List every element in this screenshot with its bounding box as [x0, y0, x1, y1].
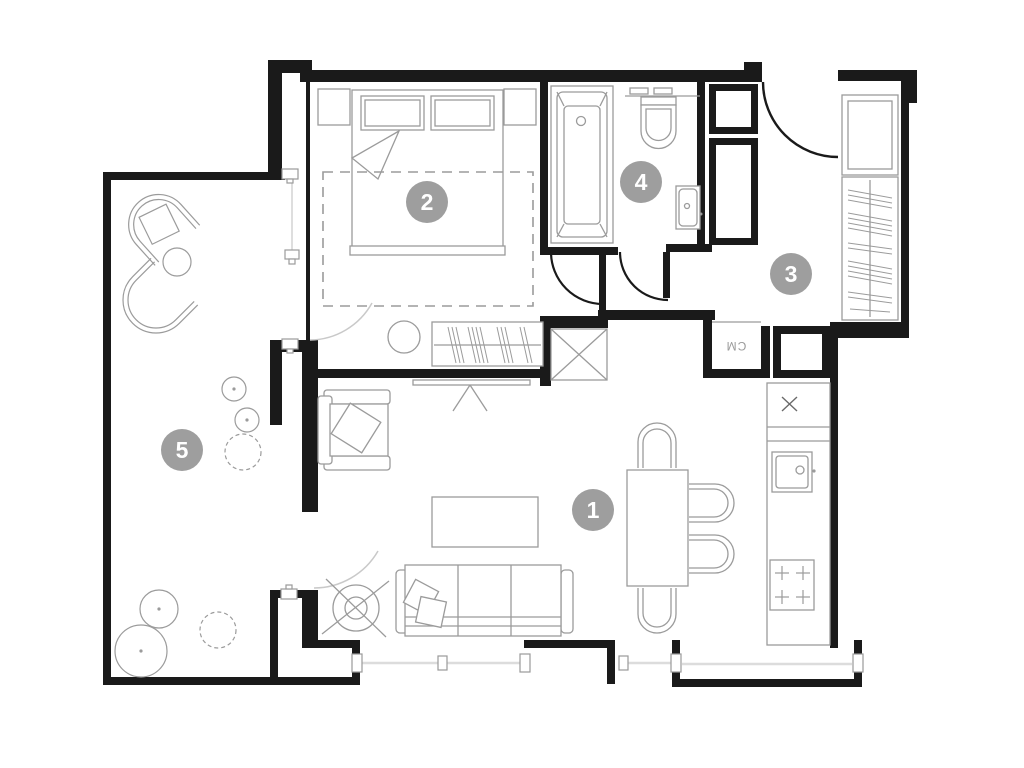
pouf	[388, 321, 420, 353]
nightstand-right	[504, 89, 536, 125]
pilaster-entry	[744, 62, 762, 82]
window-mullion	[619, 656, 628, 670]
room-badge-living-room: 1	[572, 489, 614, 531]
lounge-cushion	[139, 204, 179, 244]
nightstand-left	[318, 89, 350, 125]
floor-plan-svg: CM 12345	[0, 0, 1024, 768]
wall-living-left-upper	[302, 340, 318, 512]
pilaster-top-left	[268, 60, 282, 176]
bathtub-drain	[577, 117, 586, 126]
bedroom-door-arc	[551, 252, 603, 304]
dining-chair-right-1	[689, 484, 734, 522]
bedroom-door-leaf	[599, 252, 606, 310]
junction-marker	[282, 169, 298, 183]
toilet	[641, 97, 676, 149]
niche-wall-right	[761, 326, 770, 378]
wall-bottom-block	[607, 648, 615, 684]
room-badge-hallway: 3	[770, 253, 812, 295]
sofa-cushion-2	[416, 597, 447, 628]
bathroom-door-leaf	[663, 252, 670, 298]
wall-xbox-top	[540, 316, 608, 328]
terrace-wall-left	[103, 172, 111, 685]
xbox-storage	[551, 329, 607, 380]
wall-bathroom-bottom-right	[666, 244, 712, 252]
wall-bottom-1	[302, 640, 360, 648]
window-mullion	[352, 654, 362, 672]
room-number-label: 4	[635, 169, 648, 195]
dining-chair-top	[638, 423, 676, 468]
living-room-furniture	[318, 380, 734, 637]
terrace-side-table	[163, 248, 191, 276]
tv	[413, 380, 530, 411]
room-number-label: 1	[587, 497, 600, 523]
terrace-plants	[115, 377, 261, 677]
room-number-label: 2	[421, 189, 434, 215]
bush-icon	[200, 612, 236, 648]
entry-door-arc	[763, 82, 838, 157]
window-mullion	[853, 654, 863, 672]
kitchen-sink	[772, 452, 816, 492]
bay-wall-bottom	[672, 679, 862, 687]
hallway-cabinet	[842, 95, 898, 175]
wall-kitchen-right	[830, 330, 838, 648]
wall-jog	[270, 590, 278, 685]
dining-set	[627, 423, 734, 633]
terrace-wall-bottom	[103, 677, 360, 685]
coffee-table	[432, 497, 538, 547]
stove	[770, 560, 814, 610]
bathroom-fixtures	[551, 86, 703, 243]
room-badge-terrace: 5	[161, 429, 203, 471]
room-number-label: 5	[176, 437, 189, 463]
window-mullion	[520, 654, 530, 672]
wall-corridor	[598, 310, 715, 320]
hallway-wardrobe	[842, 177, 898, 320]
window-mullion	[671, 654, 681, 672]
room-badge-bathroom: 4	[620, 161, 662, 203]
room-badge-bedroom: 2	[406, 181, 448, 223]
dining-table	[627, 470, 688, 586]
niche-wall-bottom	[703, 369, 770, 378]
dining-chair-bottom	[638, 588, 676, 633]
window-mullion	[438, 656, 447, 670]
wall-bedroom-bottom	[302, 369, 551, 378]
wall-top	[300, 70, 745, 82]
junction-marker	[281, 585, 297, 599]
washing-machine-label: CM	[726, 339, 747, 353]
dining-chair-right-2	[689, 535, 734, 573]
potted-plant	[322, 579, 389, 637]
room-number-label: 3	[785, 261, 798, 287]
armchair	[318, 390, 390, 470]
bedroom-wardrobe	[432, 322, 543, 366]
wall-bathroom-left	[540, 82, 548, 255]
bathtub	[551, 86, 613, 243]
pilaster-top-right	[908, 81, 917, 103]
wall-living-left-lower	[302, 590, 318, 648]
glass-wall-bedroom	[306, 82, 310, 342]
wall-bottom-2	[524, 640, 615, 648]
terrace-door-arc-living	[314, 551, 378, 588]
wall-hallway-bottom	[830, 322, 909, 338]
pier-terrace	[270, 340, 282, 425]
floor-plan-page: CM 12345	[0, 0, 1024, 768]
bathroom-shelf	[625, 88, 700, 96]
sofa	[396, 565, 573, 636]
washbasin	[676, 186, 703, 229]
bush-icon	[225, 434, 261, 470]
curtain-track	[285, 182, 299, 264]
terrace-wall-top	[103, 172, 285, 180]
wall-right	[901, 70, 909, 338]
kitchen	[767, 383, 830, 645]
terrace-door-arc-bedroom	[310, 303, 372, 340]
lounge-chair-2	[109, 258, 197, 346]
bathroom-door-arc	[620, 252, 668, 300]
